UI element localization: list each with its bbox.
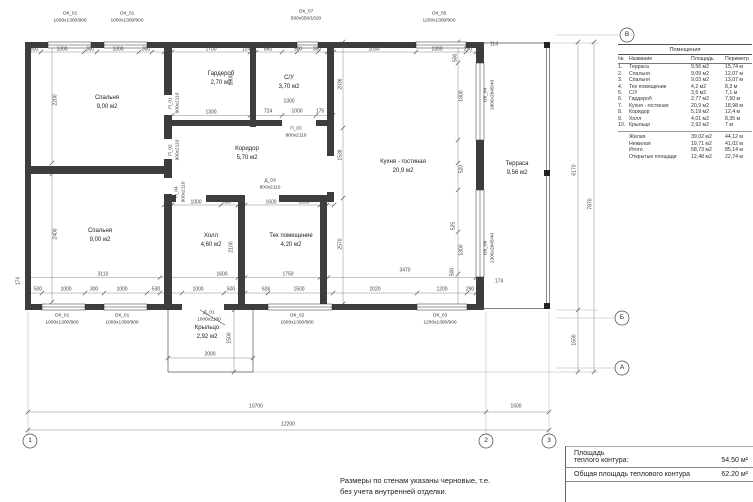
dim-label: 530 [152,288,160,293]
dim-label: 2036 [339,78,344,89]
dim-label: 1300 [460,244,465,255]
note-line-1: Размеры по стенам указаны черновые, т.е. [340,475,490,486]
window-label: ОК_01 [120,13,135,18]
legend-col-area: Площадь [691,56,725,62]
axis-letter-a: А [620,365,624,372]
dim-label: 7870 [589,198,594,209]
walls [25,42,484,310]
window-size: 1200х1300/900 [422,20,455,25]
window-label: ОК_06 [485,241,490,256]
windows [42,42,484,310]
room-bedroom-2-area: 9,00 м2 [90,237,111,243]
dim-label: 500 [294,48,302,53]
door-size: 900х2110 [177,93,182,114]
room-bath-area: 3,70 м2 [279,84,300,90]
dim-label: 1300 [283,100,294,105]
window-size: 1000х1300/900 [45,322,78,327]
window-size: 1300х2845/40 [492,233,497,263]
room-bath-name: С/У [284,75,294,81]
dim-label: 300 [90,288,98,293]
legend-summary: Жилая39,02 м244,12 мНежилая19,71 м241,02… [618,131,752,160]
dim-label: 124 [164,48,172,53]
dim-label: 1000 [190,201,201,206]
dim-label: 1750 [282,273,293,278]
door-label: П_03 [290,128,301,133]
dim-label: 124 [242,48,250,53]
room-terrace-area: 9,56 м2 [507,170,528,176]
dim-label: 3110 [98,273,109,278]
dim-label: 2400 [54,228,59,239]
room-hall-name: Холл [204,233,218,239]
axis-letter-v: В [625,32,629,39]
heated-area-value: 54.50 м² [721,457,748,464]
window-label: ОК_01 [55,315,70,320]
dim-label: 174 [17,277,22,285]
dim-label: 626 [262,288,270,293]
heated-area-infobox: Площадьтеплого контура: 54.50 м² Общая п… [565,446,753,502]
window-label: ОК_07 [299,11,314,16]
window-size: 1000х1300/900 [110,20,143,25]
room-bedroom-2-name: Спальня [88,228,112,234]
axis-letter-b: Б [620,315,624,322]
door-label: П_01 [170,97,175,108]
dim-label: 290 [466,288,474,293]
window-label: ОК_05 [432,13,447,18]
dim-label: 500 [34,288,42,293]
dim-label: 10700 [249,405,263,410]
dim-label: 1000 [112,48,123,53]
room-tech-area: 4,20 м2 [281,242,302,248]
dim-label: 1500 [228,332,233,343]
dim-label: 860 [264,48,272,53]
dim-label: 500 [223,201,231,206]
legend-col-perimeter: Периметр [725,56,752,62]
dim-label: 1500 [510,405,521,410]
note-line-2: без учета внутренней отделки. [340,486,490,497]
legend-col-name: Название [629,56,691,62]
dim-label: 290 [464,48,472,53]
dim-label: 525 [452,222,457,230]
dim-label: 6170 [573,164,578,175]
door-size: 900х2110 [177,140,182,161]
window-label: ОК_03 [433,315,448,320]
dim-label: 2570 [339,238,344,249]
dim-label: 506 [454,54,459,62]
total-heated-area-row: Общая площадь теплового контура 62.20 м² [566,468,753,482]
dim-label: 1800 [460,90,465,101]
floor-plan-page: { "legend": { "title": "Помещения", "col… [0,0,753,502]
window-label: ОК_04 [485,88,490,103]
window-label: ОК_02 [290,315,305,320]
legend-summary-row: Открытые площади12,48 м222,74 м [618,154,752,160]
legend-col-n: № [618,56,629,62]
dim-label: 174 [495,280,503,285]
legend-rows: 1.Терраса9,56 м215,74 м2.Спальня9,09 м21… [618,64,752,128]
dim-label: 2100 [230,241,235,252]
dim-label: 724 [264,110,272,115]
door-label: Д_01 [203,312,214,317]
heated-area-label: Площадьтеплого контура: [574,450,628,464]
terrace-posts [544,42,550,309]
dim-label: 1300 [205,111,216,116]
dim-label: 500 [227,288,235,293]
window-size: 1200х1300/900 [423,322,456,327]
dim-label: 1000 [56,48,67,53]
dim-label: 1600 [265,201,276,206]
window-label: ОК_01 [63,13,78,18]
dim-label: 1500 [573,334,578,345]
dim-label: 1300 [431,48,442,53]
window-size: 1800х2845/40 [492,80,497,110]
dim-label: 2000 [204,353,215,358]
dim-label: 2200 [54,94,59,105]
dim-label: 300 [142,48,150,53]
legend-title: Помещения [618,44,752,55]
window-size: 1000х1300/900 [105,322,138,327]
room-porch-name: Крыльцо [195,325,219,331]
room-terrace-name: Терраса [505,161,528,167]
door-size: 800х2110 [286,135,307,140]
dim-label: 1800 [230,74,235,85]
room-corridor-name: Коридор [235,146,259,152]
dim-label: 12200 [281,423,295,428]
dim-label: 520 [460,165,465,173]
room-tech-name: Тех помещение [269,233,312,239]
room-bedroom-1-area: 9,00 м2 [97,104,118,110]
dim-label: 300 [313,48,321,53]
room-porch-area: 2,92 м2 [197,334,218,340]
window-label: ОК_01 [115,315,130,320]
room-hall-area: 4,60 м2 [201,242,222,248]
heated-area-row: Площадьтеплого контура: 54.50 м² [566,447,753,468]
door-size: 1000х2100 [197,319,221,324]
dim-label: 1700 [205,48,216,53]
dim-label: 3470 [399,269,410,274]
dim-label: 1000 [116,288,127,293]
door-size: 800х2110 [260,187,281,192]
dim-label: 300 [86,48,94,53]
dim-label: 1000 [60,288,71,293]
window-size: 1000х1300/900 [53,20,86,25]
dim-label: 1200 [436,288,447,293]
room-bedroom-1-name: Спальня [95,95,119,101]
door-label: П_04 [176,186,181,197]
legend-header-row: № Название Площадь Периметр [618,55,752,64]
dim-label: 1600 [216,273,227,278]
window-size: 1600х1300/900 [280,322,313,327]
rooms-legend-table: Помещения № Название Площадь Периметр 1.… [618,44,752,160]
door-size: 900х2110 [183,182,188,203]
total-heated-area-value: 62.20 м² [721,471,748,478]
door-label: П_02 [170,144,175,155]
legend-row: 10.Крыльцо2,92 м27 м [618,122,752,128]
room-kitchen-area: 20,9 м2 [393,168,414,174]
dim-label: 114 [490,43,498,48]
axis-number-3: 3 [547,438,551,445]
window-size: 500х550/1620 [291,18,321,23]
door-label: Д_03 [264,180,275,185]
total-heated-area-label: Общая площадь теплового контура [574,471,690,478]
dim-label: 500 [451,268,456,276]
dim-label: 1500 [293,288,304,293]
dim-label: 1000 [291,110,302,115]
axis-number-1: 1 [28,438,32,445]
dim-label: 1000 [192,288,203,293]
dim-label: 1000 [298,201,309,206]
dim-label: 2030 [368,48,379,53]
room-corridor-area: 5,70 м2 [237,155,258,161]
dim-label: 300 [30,48,38,53]
room-kitchen-name: Кухня - гостиная [380,159,426,165]
axis-number-2: 2 [484,438,488,445]
dim-label: 175 [316,110,324,115]
dim-label: 1536 [339,149,344,160]
drawing-note: Размеры по стенам указаны черновые, т.е.… [340,475,490,497]
dim-label: 2020 [369,288,380,293]
